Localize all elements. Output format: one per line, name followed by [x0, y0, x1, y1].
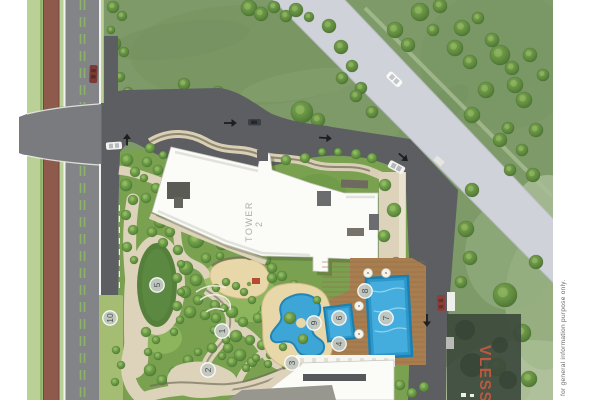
svg-text:7: 7 [381, 315, 391, 320]
svg-text:3: 3 [287, 360, 297, 365]
svg-text:6: 6 [334, 315, 344, 320]
svg-text:2: 2 [203, 367, 213, 372]
svg-text:TOWER: TOWER [244, 201, 254, 242]
svg-text:VLESS: VLESS [476, 345, 493, 400]
svg-text:for general information purpos: for general information purpose only. [560, 280, 567, 396]
svg-text:2: 2 [254, 220, 264, 227]
svg-text:4: 4 [334, 341, 344, 346]
svg-text:10: 10 [105, 313, 115, 323]
svg-text:8: 8 [360, 288, 370, 293]
svg-text:5: 5 [152, 282, 162, 287]
svg-text:9: 9 [309, 320, 319, 325]
svg-text:1: 1 [217, 328, 227, 333]
